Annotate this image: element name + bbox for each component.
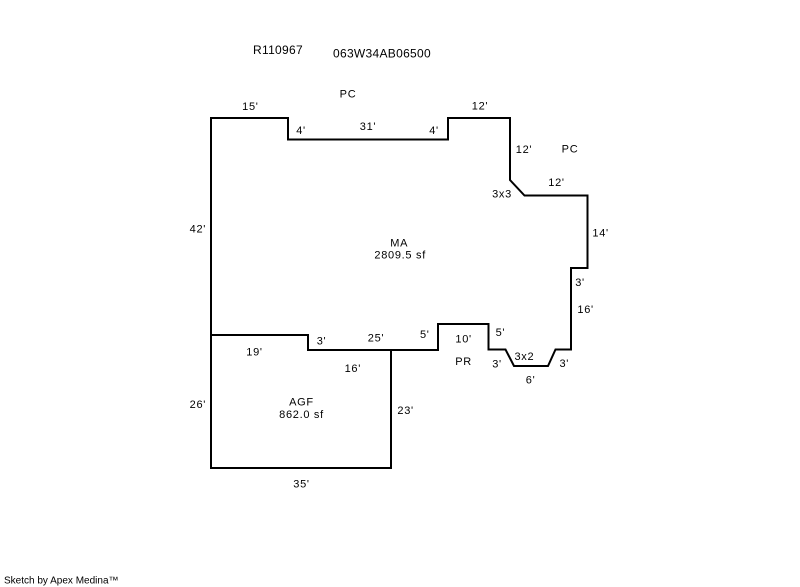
- svg-text:PC: PC: [340, 89, 357, 101]
- svg-text:19': 19': [246, 347, 262, 359]
- svg-text:16': 16': [345, 363, 361, 375]
- svg-text:3': 3': [492, 358, 502, 370]
- svg-text:6': 6': [526, 374, 536, 386]
- svg-text:23': 23': [397, 405, 413, 417]
- svg-text:Sketch by Apex Medina™: Sketch by Apex Medina™: [4, 576, 119, 587]
- svg-text:12': 12': [516, 144, 532, 156]
- svg-text:16': 16': [577, 304, 593, 316]
- svg-text:35': 35': [293, 479, 309, 491]
- svg-text:3x3: 3x3: [492, 189, 512, 201]
- svg-text:MA: MA: [390, 238, 408, 250]
- svg-text:42': 42': [190, 223, 206, 235]
- svg-text:15': 15': [242, 101, 258, 113]
- svg-text:4': 4': [296, 125, 306, 137]
- svg-text:26': 26': [190, 399, 206, 411]
- svg-text:AGF: AGF: [289, 397, 314, 409]
- svg-text:5': 5': [496, 327, 506, 339]
- svg-text:3': 3': [575, 277, 585, 289]
- svg-text:31': 31': [360, 121, 376, 133]
- svg-text:3': 3': [317, 336, 327, 348]
- svg-text:10': 10': [455, 334, 471, 346]
- svg-text:12': 12': [472, 101, 488, 113]
- svg-text:3x2: 3x2: [514, 351, 534, 363]
- svg-text:14': 14': [592, 227, 608, 239]
- svg-text:862.0 sf: 862.0 sf: [279, 409, 324, 421]
- svg-text:PC: PC: [562, 143, 579, 155]
- svg-text:4': 4': [429, 125, 439, 137]
- svg-text:3': 3': [559, 358, 569, 370]
- svg-text:2809.5 sf: 2809.5 sf: [374, 250, 426, 262]
- svg-text:R110967: R110967: [253, 43, 303, 57]
- svg-text:12': 12': [548, 177, 564, 189]
- svg-text:25': 25': [368, 332, 384, 344]
- svg-text:063W34AB06500: 063W34AB06500: [333, 46, 431, 60]
- svg-text:PR: PR: [455, 356, 472, 368]
- svg-text:5': 5': [420, 329, 430, 341]
